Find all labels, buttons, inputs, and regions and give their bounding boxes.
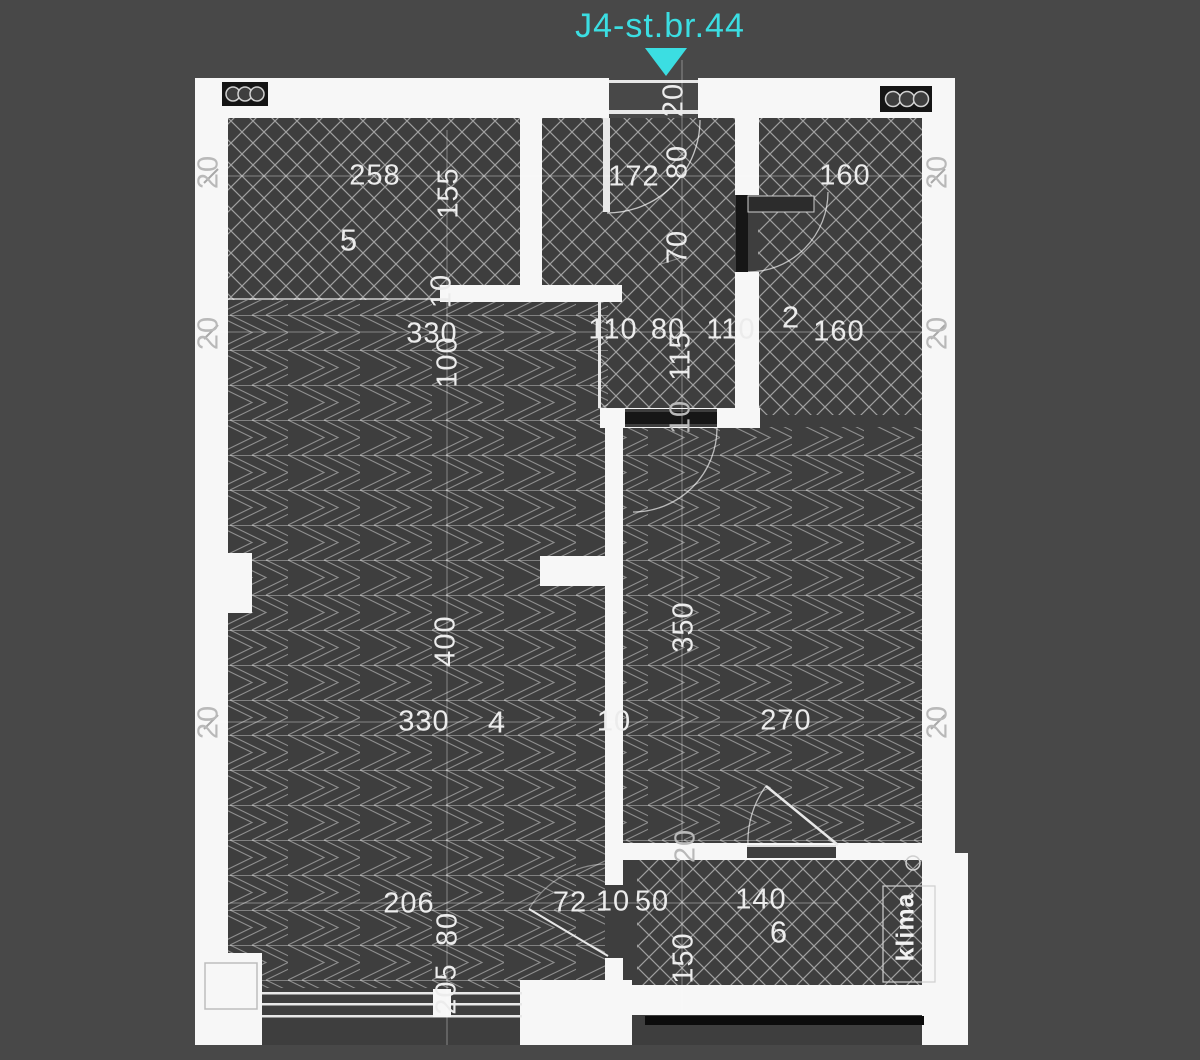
window-glazing-line <box>262 1015 522 1018</box>
room4-number: 4 <box>488 707 506 738</box>
dim-passage-10: 10 <box>596 888 630 917</box>
dim-passage-72: 72 <box>553 889 587 918</box>
dim-terrace-20: 20 <box>672 829 701 863</box>
dim-hall-110b: 110 <box>706 316 755 345</box>
wall-pier-left <box>228 553 252 613</box>
wall-central-lower <box>605 958 623 1010</box>
dim-wall-right-20a: 20 <box>924 155 953 189</box>
dim-wall-10: 10 <box>428 274 457 308</box>
dim-wall-right-20c: 20 <box>924 705 953 739</box>
wall-room5-bottom <box>440 285 622 302</box>
dim-passage-50: 50 <box>635 888 669 917</box>
dim-window-205: 205 <box>433 963 462 1014</box>
wall-hall-room2-upper <box>735 118 759 195</box>
wall-room5-hall <box>520 118 542 302</box>
wall-stub-central <box>540 556 620 586</box>
terrace-railing <box>645 1016 924 1025</box>
shaft-top-left <box>222 82 268 106</box>
pipe-icon <box>886 92 901 107</box>
wall-terrace-right <box>922 853 968 1045</box>
dim-room5-155: 155 <box>435 167 464 218</box>
room6-number: 6 <box>770 917 788 948</box>
dim-room2-160a: 160 <box>819 162 870 191</box>
dim-hall-110a: 110 <box>588 316 637 345</box>
terrace-door-threshold <box>747 845 836 847</box>
dim-living-330b: 330 <box>398 708 449 737</box>
wall-central-upper <box>605 415 623 885</box>
dim-room5-258: 258 <box>349 162 400 191</box>
room5-number: 5 <box>340 225 358 256</box>
dim-hall-115: 115 <box>667 331 696 380</box>
dim-window-206: 206 <box>383 890 434 919</box>
pipe-icon <box>250 87 264 101</box>
dim-wall-left-20a: 20 <box>195 155 224 189</box>
dim-entrance-20: 20 <box>660 83 689 117</box>
room2-door-leaf <box>736 195 748 272</box>
terrace-slab-edge <box>632 985 924 1015</box>
dim-wall-left-20b: 20 <box>195 316 224 350</box>
dim-hall-70: 70 <box>664 230 693 264</box>
floor-room5 <box>228 118 520 300</box>
dim-central-10: 10 <box>597 708 631 737</box>
wall-top <box>195 78 955 118</box>
wall-left <box>195 78 228 1045</box>
floor-junction-line <box>228 298 442 300</box>
dim-room2-160b: 160 <box>813 318 864 347</box>
dim-wall-left-20c: 20 <box>195 705 224 739</box>
dim-terrace-140: 140 <box>735 886 786 915</box>
dim-wall-right-20b: 20 <box>924 316 953 350</box>
klima-label: klima <box>894 893 919 962</box>
dim-window-80: 80 <box>434 912 463 946</box>
window-glazing-line <box>262 1003 522 1006</box>
dim-wall-hall-10: 10 <box>667 400 696 434</box>
pipe-icon <box>914 92 929 107</box>
floor-hall-upper <box>542 118 735 302</box>
pipe-icon <box>900 92 915 107</box>
shaft-top-right <box>880 86 932 112</box>
dim-living-400: 400 <box>432 615 461 666</box>
dim-living-100: 100 <box>434 336 463 387</box>
dim-terrace-150: 150 <box>670 932 699 983</box>
plan-title: J4-st.br.44 <box>575 9 745 43</box>
floor-room4-living <box>228 300 608 988</box>
dim-room3-350: 350 <box>670 601 699 652</box>
dim-hall-172: 172 <box>608 163 659 192</box>
entrance-marker-icon <box>645 48 687 76</box>
room2-number: 2 <box>782 302 800 333</box>
window-glazing-line <box>262 992 522 995</box>
dim-hall-80: 80 <box>664 145 693 179</box>
dim-room3-270: 270 <box>760 707 811 736</box>
room2-cabinet <box>748 196 814 212</box>
